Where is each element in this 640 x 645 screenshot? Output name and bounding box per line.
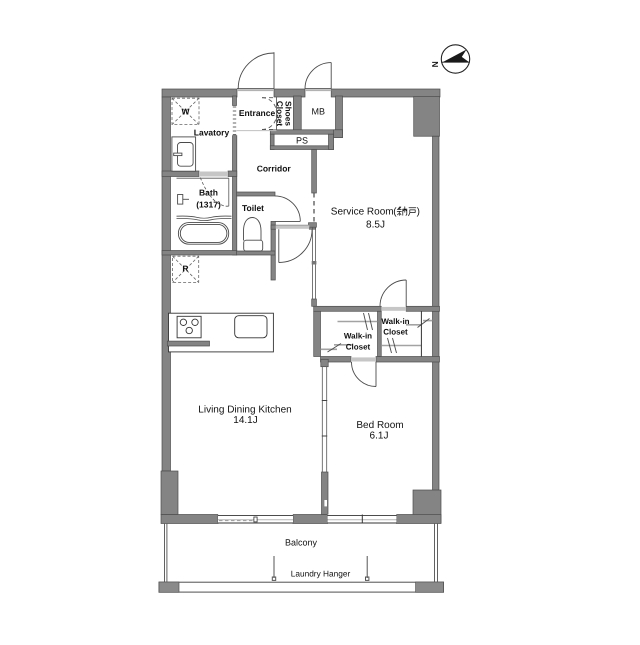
- svg-text:Bed Room: Bed Room: [356, 420, 403, 431]
- svg-text:Laundry Hanger: Laundry Hanger: [291, 569, 351, 579]
- svg-text:Entrance: Entrance: [239, 108, 276, 118]
- svg-text:Walk-in: Walk-in: [381, 317, 409, 326]
- svg-text:Corridor: Corridor: [257, 164, 292, 174]
- svg-text:): ): [417, 207, 420, 218]
- svg-text:6.1J: 6.1J: [370, 431, 389, 442]
- svg-text:Closet: Closet: [383, 328, 408, 337]
- svg-text:Service Room: Service Room: [331, 207, 394, 218]
- svg-text:R: R: [182, 264, 188, 274]
- svg-text:(1317): (1317): [196, 200, 221, 210]
- svg-text:Living Dining Kitchen: Living Dining Kitchen: [198, 405, 291, 416]
- svg-text:Balcony: Balcony: [285, 538, 318, 548]
- svg-text:MB: MB: [312, 107, 326, 117]
- svg-text:Bath: Bath: [199, 188, 218, 198]
- svg-text:14.1J: 14.1J: [233, 415, 257, 426]
- svg-text:Closet: Closet: [346, 343, 371, 352]
- svg-text:Walk-in: Walk-in: [344, 332, 372, 341]
- svg-text:Lavatory: Lavatory: [194, 128, 230, 138]
- svg-text:PS: PS: [296, 136, 308, 146]
- svg-text:W: W: [181, 107, 190, 117]
- svg-text:Toilet: Toilet: [242, 203, 264, 213]
- svg-text:Closet: Closet: [275, 101, 285, 127]
- svg-text:N: N: [430, 61, 440, 67]
- svg-text:8.5J: 8.5J: [366, 220, 385, 231]
